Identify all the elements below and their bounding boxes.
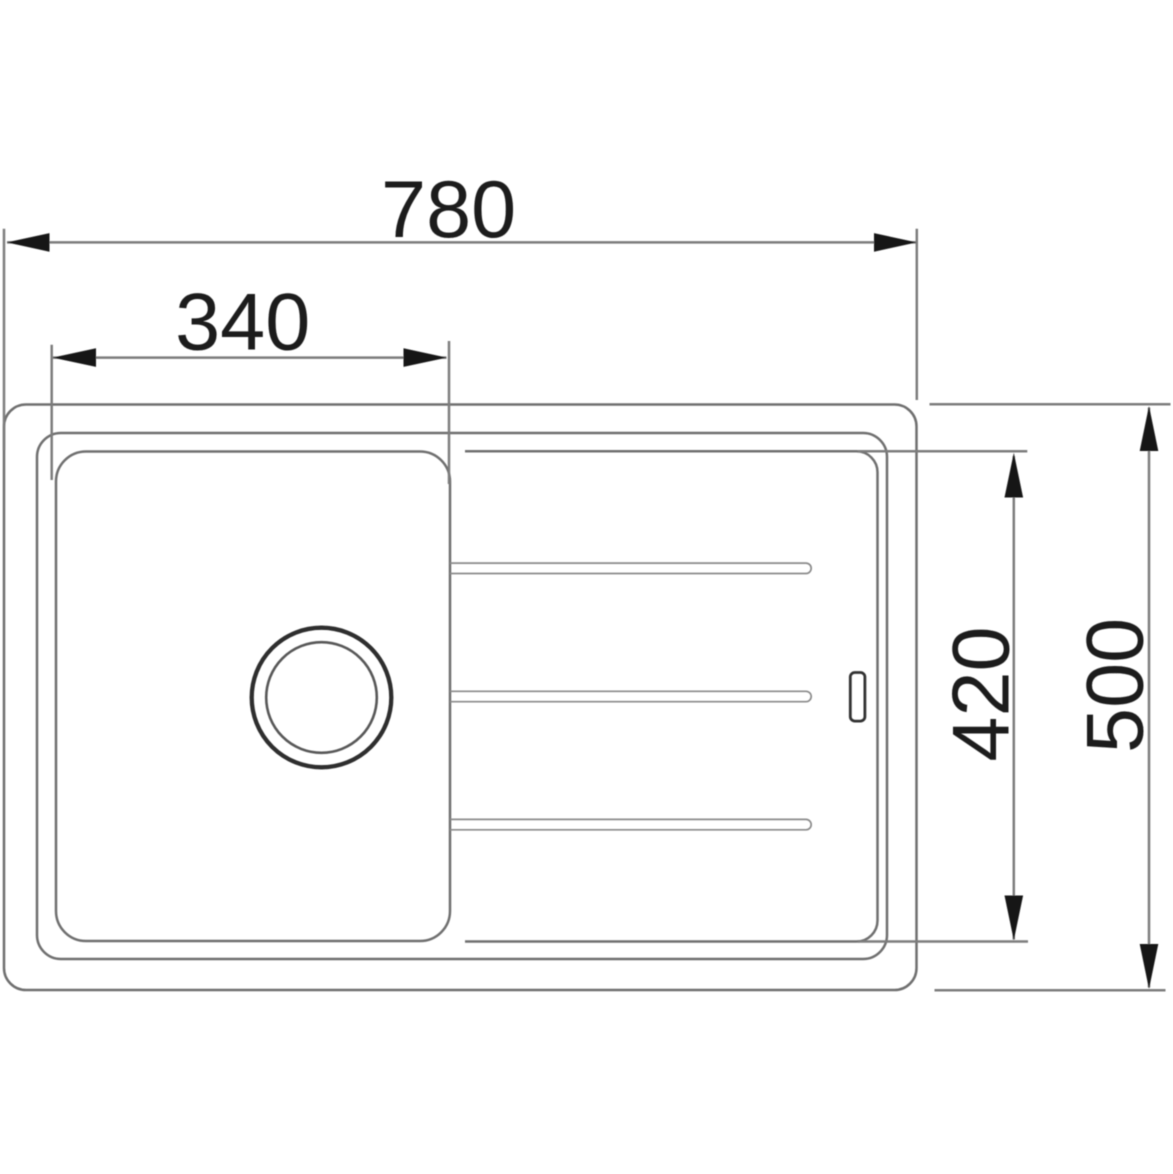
svg-text:420: 420 [937, 626, 1027, 761]
svg-text:500: 500 [1071, 618, 1161, 753]
svg-text:780: 780 [381, 165, 516, 255]
svg-text:340: 340 [175, 278, 310, 368]
